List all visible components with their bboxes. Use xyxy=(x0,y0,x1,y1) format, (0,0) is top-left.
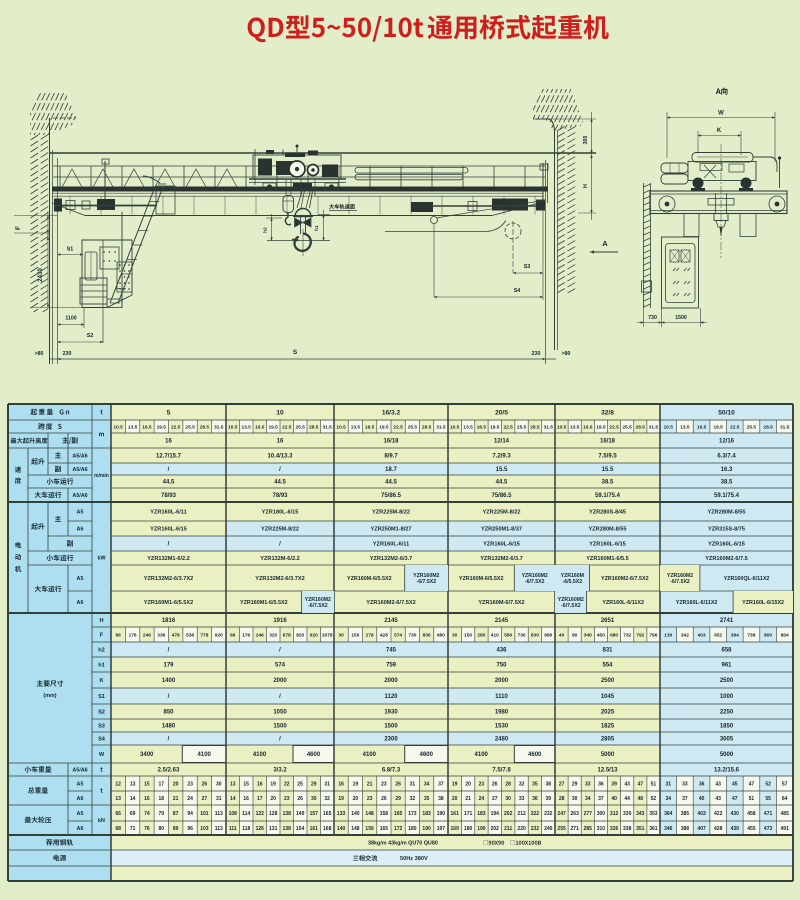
svg-text:4100: 4100 xyxy=(475,752,489,758)
svg-text:A: A xyxy=(602,239,608,248)
svg-text:830: 830 xyxy=(423,633,431,639)
svg-text:31: 31 xyxy=(216,796,222,802)
svg-text:2025: 2025 xyxy=(601,710,615,716)
svg-text:16: 16 xyxy=(243,796,249,802)
svg-text:10.4/13.3: 10.4/13.3 xyxy=(267,454,293,460)
svg-text:271: 271 xyxy=(571,826,580,832)
svg-text:34: 34 xyxy=(424,782,430,788)
svg-text:19: 19 xyxy=(452,782,458,788)
svg-text:652: 652 xyxy=(714,633,722,639)
svg-text:47: 47 xyxy=(638,782,644,788)
svg-text:22: 22 xyxy=(284,782,290,788)
svg-text:15: 15 xyxy=(243,782,249,788)
svg-text:44.5: 44.5 xyxy=(385,480,397,486)
svg-text:6.8/7.3: 6.8/7.3 xyxy=(382,768,401,774)
svg-text:436: 436 xyxy=(496,648,507,654)
svg-text:YZR180L-6/15: YZR180L-6/15 xyxy=(262,510,299,516)
svg-text:246: 246 xyxy=(143,633,151,639)
svg-text:39: 39 xyxy=(546,796,552,802)
svg-text:A5/A6: A5/A6 xyxy=(72,768,87,774)
svg-text:20: 20 xyxy=(353,796,359,802)
svg-text:YZR250M1-8/37: YZR250M1-8/37 xyxy=(481,527,522,533)
svg-text:28.5: 28.5 xyxy=(200,425,210,431)
svg-text:16.5: 16.5 xyxy=(697,425,707,431)
svg-text:197: 197 xyxy=(437,826,446,832)
svg-text:16.5: 16.5 xyxy=(477,425,487,431)
svg-text:S1: S1 xyxy=(98,694,105,700)
svg-text:2145: 2145 xyxy=(384,618,398,624)
svg-text:40: 40 xyxy=(559,633,565,639)
svg-text:43: 43 xyxy=(624,782,630,788)
svg-text:455: 455 xyxy=(747,826,756,832)
svg-text:14: 14 xyxy=(230,796,236,802)
svg-text:S3: S3 xyxy=(524,264,531,270)
svg-text:40: 40 xyxy=(699,796,705,802)
svg-text:15.5: 15.5 xyxy=(602,467,614,473)
svg-text:1120: 1120 xyxy=(384,694,398,700)
svg-text:2300: 2300 xyxy=(384,737,398,743)
svg-text:19: 19 xyxy=(338,796,344,802)
svg-text:YZR160L-6/11: YZR160L-6/11 xyxy=(373,542,409,548)
svg-text:-6/7.5X2: -6/7.5X2 xyxy=(525,579,545,585)
svg-text:YZR160M-6/5.5X2: YZR160M-6/5.5X2 xyxy=(347,576,392,582)
svg-text:31.5: 31.5 xyxy=(544,425,554,431)
svg-text:YZR160M: YZR160M xyxy=(561,573,584,579)
svg-text:19.5: 19.5 xyxy=(269,425,279,431)
svg-text:YZR132M2-6/3.7: YZR132M2-6/3.7 xyxy=(480,556,523,562)
svg-text:S2: S2 xyxy=(87,333,94,339)
svg-text:10.5: 10.5 xyxy=(450,425,460,431)
svg-text:961: 961 xyxy=(721,663,732,669)
svg-text:15.5: 15.5 xyxy=(496,467,508,473)
svg-text:A5: A5 xyxy=(77,510,84,516)
svg-text:1930: 1930 xyxy=(384,710,398,716)
svg-text:37: 37 xyxy=(598,796,604,802)
svg-text:4600: 4600 xyxy=(307,752,321,758)
svg-text:554: 554 xyxy=(602,663,613,669)
svg-text:31: 31 xyxy=(324,782,330,788)
svg-text:H: H xyxy=(99,618,103,624)
svg-text:55: 55 xyxy=(765,796,771,802)
svg-text:S3: S3 xyxy=(98,724,105,730)
svg-text:128: 128 xyxy=(269,811,278,817)
svg-text:-6/7.5X2: -6/7.5X2 xyxy=(308,603,328,609)
svg-text:580: 580 xyxy=(504,633,512,639)
svg-text:1050: 1050 xyxy=(273,710,287,716)
svg-text:m/min: m/min xyxy=(94,473,109,479)
svg-text:A5/A6: A5/A6 xyxy=(72,467,87,473)
svg-text:165: 165 xyxy=(394,811,403,817)
svg-text:920: 920 xyxy=(310,633,318,639)
svg-text:38.5: 38.5 xyxy=(721,480,733,486)
svg-text:22.5: 22.5 xyxy=(171,425,181,431)
svg-text:326: 326 xyxy=(610,826,619,832)
svg-text:50Hz 380V: 50Hz 380V xyxy=(400,856,428,862)
svg-text:5: 5 xyxy=(167,409,171,416)
svg-text:24: 24 xyxy=(479,796,485,802)
svg-text:361: 361 xyxy=(649,826,658,832)
svg-text:458: 458 xyxy=(747,811,756,817)
svg-text:YZR160M2: YZR160M2 xyxy=(667,573,693,579)
svg-text:40: 40 xyxy=(611,796,617,802)
svg-text:2250: 2250 xyxy=(720,710,734,716)
svg-text:980: 980 xyxy=(437,633,445,639)
svg-text:32: 32 xyxy=(324,796,330,802)
svg-text:428: 428 xyxy=(714,826,723,832)
svg-text:450: 450 xyxy=(597,633,605,639)
svg-text:F: F xyxy=(100,633,104,639)
svg-text:h2: h2 xyxy=(263,227,269,233)
svg-text:16: 16 xyxy=(165,439,172,445)
svg-text:16: 16 xyxy=(144,796,150,802)
svg-text:h1: h1 xyxy=(98,663,105,669)
svg-text:YZR160M1-6/5.5X2: YZR160M1-6/5.5X2 xyxy=(240,600,288,606)
svg-text:2000: 2000 xyxy=(273,678,287,684)
svg-text:52: 52 xyxy=(765,782,771,788)
svg-text:173: 173 xyxy=(408,811,417,817)
svg-text:388: 388 xyxy=(681,826,690,832)
svg-text:5000: 5000 xyxy=(720,752,734,758)
svg-text:YZR160M2-6/7.5X2: YZR160M2-6/7.5X2 xyxy=(601,576,649,582)
svg-text:29: 29 xyxy=(395,796,401,802)
svg-text:407: 407 xyxy=(697,826,706,832)
svg-text:22.5: 22.5 xyxy=(504,425,514,431)
svg-text:90: 90 xyxy=(572,633,578,639)
svg-text:168: 168 xyxy=(323,826,332,832)
svg-text:2000: 2000 xyxy=(384,678,398,684)
svg-text:YZR280M-8/55: YZR280M-8/55 xyxy=(708,510,746,516)
svg-text:19.5: 19.5 xyxy=(157,425,167,431)
svg-text:A6: A6 xyxy=(77,600,84,606)
svg-text:1500: 1500 xyxy=(384,724,398,730)
svg-text:YZR160M-6/5.5X2: YZR160M-6/5.5X2 xyxy=(459,576,504,582)
svg-text:17: 17 xyxy=(257,796,263,802)
svg-text:222: 222 xyxy=(531,811,540,817)
svg-text:320: 320 xyxy=(269,633,277,639)
svg-text:YZR225M-8/22: YZR225M-8/22 xyxy=(483,510,521,516)
svg-text:430: 430 xyxy=(731,811,740,817)
svg-text:172: 172 xyxy=(394,826,403,832)
svg-text:YZR160M2: YZR160M2 xyxy=(558,597,584,603)
svg-text:23: 23 xyxy=(284,796,290,802)
svg-text:16.5: 16.5 xyxy=(255,425,265,431)
svg-text:43: 43 xyxy=(715,796,721,802)
svg-text:1850: 1850 xyxy=(720,724,734,730)
svg-text:140: 140 xyxy=(351,811,360,817)
svg-text:10.5: 10.5 xyxy=(336,425,346,431)
svg-text:10.5: 10.5 xyxy=(557,425,567,431)
svg-text:28.5: 28.5 xyxy=(309,425,319,431)
svg-text:28.5: 28.5 xyxy=(763,425,773,431)
svg-text:2651: 2651 xyxy=(601,618,615,624)
svg-text:157: 157 xyxy=(310,811,319,817)
svg-text:1045: 1045 xyxy=(601,694,615,700)
svg-text:21: 21 xyxy=(465,796,471,802)
svg-text:76: 76 xyxy=(144,826,150,832)
svg-text:31.5: 31.5 xyxy=(214,425,224,431)
svg-text:30: 30 xyxy=(311,796,317,802)
svg-text:158: 158 xyxy=(380,811,389,817)
svg-text:13.5: 13.5 xyxy=(570,425,580,431)
svg-text:2805: 2805 xyxy=(601,737,615,743)
svg-text:183: 183 xyxy=(422,811,431,817)
svg-text:16.3: 16.3 xyxy=(721,467,733,473)
svg-text:S: S xyxy=(293,349,298,356)
svg-text:26: 26 xyxy=(202,782,208,788)
svg-text:1500: 1500 xyxy=(675,315,687,321)
svg-text:19: 19 xyxy=(353,782,359,788)
svg-text:150: 150 xyxy=(464,633,472,639)
svg-text:759: 759 xyxy=(386,663,397,669)
svg-text:26: 26 xyxy=(395,782,401,788)
svg-text:428: 428 xyxy=(380,633,388,639)
svg-text:338: 338 xyxy=(623,826,632,832)
svg-text:15: 15 xyxy=(144,782,150,788)
svg-text:300: 300 xyxy=(583,136,589,145)
svg-text:804: 804 xyxy=(781,633,789,639)
svg-text:A6: A6 xyxy=(77,826,84,832)
svg-text:25.5: 25.5 xyxy=(296,425,306,431)
svg-text:118: 118 xyxy=(242,826,250,832)
svg-text:38: 38 xyxy=(546,782,552,788)
svg-text:491: 491 xyxy=(781,826,790,832)
svg-text:1530: 1530 xyxy=(495,724,509,730)
svg-text:19: 19 xyxy=(270,782,276,788)
svg-text:230: 230 xyxy=(532,351,541,357)
svg-text:745: 745 xyxy=(386,648,397,654)
svg-text:21: 21 xyxy=(367,782,373,788)
svg-text:211: 211 xyxy=(504,826,512,832)
svg-text:28: 28 xyxy=(505,782,511,788)
svg-text:340: 340 xyxy=(584,633,592,639)
svg-text:830: 830 xyxy=(531,633,539,639)
svg-text:F: F xyxy=(15,226,22,230)
svg-text:3/3.2: 3/3.2 xyxy=(273,768,287,774)
svg-text:255: 255 xyxy=(557,826,566,832)
svg-text:165: 165 xyxy=(380,826,389,832)
svg-text:27: 27 xyxy=(492,796,498,802)
svg-text:161: 161 xyxy=(310,826,319,832)
svg-text:A6: A6 xyxy=(77,527,84,533)
svg-text:44.5: 44.5 xyxy=(163,480,175,486)
svg-text:2000: 2000 xyxy=(495,678,509,684)
svg-text:122: 122 xyxy=(256,811,265,817)
svg-text:4600: 4600 xyxy=(420,752,434,758)
svg-text:YZR160L-6/15: YZR160L-6/15 xyxy=(150,527,187,533)
svg-text:66: 66 xyxy=(115,811,121,817)
svg-text:1480: 1480 xyxy=(162,724,176,730)
svg-text:87: 87 xyxy=(173,811,179,817)
svg-text:10.5: 10.5 xyxy=(114,425,124,431)
svg-text:130: 130 xyxy=(664,633,672,639)
svg-text:31.5: 31.5 xyxy=(323,425,333,431)
svg-text:33: 33 xyxy=(519,796,525,802)
svg-text:154: 154 xyxy=(296,826,305,832)
svg-text:113: 113 xyxy=(215,811,223,817)
svg-text:161: 161 xyxy=(451,811,460,817)
svg-text:156: 156 xyxy=(365,826,374,832)
svg-text:26: 26 xyxy=(297,796,303,802)
svg-text:32/8: 32/8 xyxy=(601,409,614,416)
svg-text:31: 31 xyxy=(666,782,672,788)
svg-text:439: 439 xyxy=(731,826,740,832)
svg-text:280: 280 xyxy=(477,633,485,639)
svg-text:36: 36 xyxy=(699,782,705,788)
svg-text:346: 346 xyxy=(664,826,673,832)
svg-text:850: 850 xyxy=(163,710,174,716)
svg-text:658: 658 xyxy=(721,648,732,654)
svg-text:28.5: 28.5 xyxy=(636,425,646,431)
svg-text:19.5: 19.5 xyxy=(714,425,724,431)
svg-text:165: 165 xyxy=(323,811,332,817)
svg-text:247: 247 xyxy=(557,811,566,817)
svg-text:38: 38 xyxy=(438,796,444,802)
svg-text:285: 285 xyxy=(584,826,593,832)
svg-text:150: 150 xyxy=(351,633,359,639)
svg-text:YZR250M1-8/27: YZR250M1-8/27 xyxy=(370,527,411,533)
svg-text:2480: 2480 xyxy=(495,737,509,743)
svg-text:13: 13 xyxy=(130,782,136,788)
svg-text:28.5: 28.5 xyxy=(422,425,432,431)
svg-text:278: 278 xyxy=(366,633,374,639)
svg-text:750: 750 xyxy=(496,663,507,669)
svg-text:7.2/9.3: 7.2/9.3 xyxy=(492,454,511,460)
svg-text:10: 10 xyxy=(276,409,284,416)
svg-text:30: 30 xyxy=(505,796,511,802)
svg-text:8/9.7: 8/9.7 xyxy=(384,454,398,460)
svg-text:94: 94 xyxy=(187,811,193,817)
svg-text:16: 16 xyxy=(257,782,263,788)
svg-text:240: 240 xyxy=(544,826,553,832)
svg-text:S4: S4 xyxy=(514,288,521,294)
svg-text:29: 29 xyxy=(572,782,578,788)
svg-text:kW: kW xyxy=(97,556,106,562)
svg-text:YZR132M2-6/3.7X2: YZR132M2-6/3.7X2 xyxy=(255,576,304,582)
svg-text:33: 33 xyxy=(682,782,688,788)
svg-text:114: 114 xyxy=(242,811,250,817)
svg-text:10.5: 10.5 xyxy=(664,425,674,431)
svg-text:792: 792 xyxy=(636,633,644,639)
svg-text:1100: 1100 xyxy=(65,316,76,322)
svg-text:4100: 4100 xyxy=(253,752,267,758)
svg-text:K: K xyxy=(99,678,103,684)
svg-text:16: 16 xyxy=(277,439,284,445)
svg-text:1816: 1816 xyxy=(162,618,176,624)
svg-text:YZR160L-6/15X2: YZR160L-6/15X2 xyxy=(742,600,784,606)
svg-text:24: 24 xyxy=(187,796,193,802)
svg-text:45: 45 xyxy=(732,782,738,788)
svg-text:13.5: 13.5 xyxy=(242,425,252,431)
svg-text:5000: 5000 xyxy=(601,752,615,758)
svg-text:16: 16 xyxy=(338,782,344,788)
svg-text:YZR160QL-6/11X2: YZR160QL-6/11X2 xyxy=(724,576,770,582)
svg-text:3400: 3400 xyxy=(140,752,154,758)
svg-text:13.5: 13.5 xyxy=(128,425,138,431)
svg-text:2500: 2500 xyxy=(601,678,615,684)
svg-text:YZR132M-6/2.2: YZR132M-6/2.2 xyxy=(260,556,299,562)
svg-text:26: 26 xyxy=(381,796,387,802)
svg-text:44.5: 44.5 xyxy=(496,480,508,486)
svg-text:680: 680 xyxy=(610,633,618,639)
svg-text:29: 29 xyxy=(311,782,317,788)
svg-text:48: 48 xyxy=(638,796,644,802)
svg-text:4100: 4100 xyxy=(198,752,212,758)
svg-text:35: 35 xyxy=(424,796,430,802)
svg-text:47: 47 xyxy=(732,796,738,802)
svg-text:190: 190 xyxy=(437,811,446,817)
svg-text:YZR160L-6/11X2: YZR160L-6/11X2 xyxy=(676,600,718,606)
svg-text:14: 14 xyxy=(130,796,136,802)
svg-text:69: 69 xyxy=(130,811,136,817)
svg-text:277: 277 xyxy=(584,811,593,817)
svg-text:169: 169 xyxy=(451,826,460,832)
svg-text:1980: 1980 xyxy=(495,710,509,716)
svg-text:820: 820 xyxy=(296,633,304,639)
svg-text:44.5: 44.5 xyxy=(274,480,286,486)
svg-text:1916: 1916 xyxy=(273,618,287,624)
svg-text:66: 66 xyxy=(116,633,122,639)
svg-text:394: 394 xyxy=(731,633,739,639)
svg-text:23: 23 xyxy=(187,782,193,788)
svg-text:30: 30 xyxy=(452,633,458,639)
svg-text:YZR160L-6/11X2: YZR160L-6/11X2 xyxy=(602,600,644,606)
svg-text:YZR280M-8/55: YZR280M-8/55 xyxy=(589,527,627,533)
svg-text:108: 108 xyxy=(229,811,238,817)
svg-text:310: 310 xyxy=(597,826,606,832)
svg-text:31.5: 31.5 xyxy=(436,425,446,431)
svg-text:13: 13 xyxy=(230,782,236,788)
svg-text:YZR132M2-6/3.7: YZR132M2-6/3.7 xyxy=(370,556,413,562)
svg-text:2145: 2145 xyxy=(495,618,509,624)
svg-text:312: 312 xyxy=(610,811,619,817)
svg-text:17: 17 xyxy=(159,782,165,788)
svg-text:>80: >80 xyxy=(562,351,571,357)
svg-text:16.5: 16.5 xyxy=(583,425,593,431)
svg-text:730: 730 xyxy=(518,633,526,639)
svg-text:13.5: 13.5 xyxy=(351,425,361,431)
svg-text:28.5: 28.5 xyxy=(530,425,540,431)
svg-text:16.5: 16.5 xyxy=(142,425,152,431)
svg-text:YZR160M1-6/5.5: YZR160M1-6/5.5 xyxy=(586,556,629,562)
svg-text:(mm): (mm) xyxy=(43,693,56,699)
svg-text:190: 190 xyxy=(422,826,431,832)
svg-text:YZR160M2: YZR160M2 xyxy=(522,573,548,579)
svg-text:16/18: 16/18 xyxy=(600,439,616,445)
svg-text:478: 478 xyxy=(172,633,180,639)
svg-text:A5: A5 xyxy=(77,811,84,817)
svg-text:31: 31 xyxy=(410,782,416,788)
svg-text:23: 23 xyxy=(381,782,387,788)
svg-text:13.2/15.6: 13.2/15.6 xyxy=(714,768,740,774)
svg-text:364: 364 xyxy=(664,811,673,817)
svg-text:27: 27 xyxy=(202,796,208,802)
svg-text:20: 20 xyxy=(173,782,179,788)
svg-text:YZR132M1-6/2.2: YZR132M1-6/2.2 xyxy=(147,556,190,562)
svg-text:980: 980 xyxy=(544,633,552,639)
svg-text:149: 149 xyxy=(296,811,305,817)
svg-text:-6/7.5X2: -6/7.5X2 xyxy=(670,579,690,585)
svg-text:574: 574 xyxy=(394,633,402,639)
svg-text:385: 385 xyxy=(681,811,690,817)
svg-text:1825: 1825 xyxy=(601,724,615,730)
svg-text:YZR225M-8/22: YZR225M-8/22 xyxy=(261,527,299,533)
svg-text:W: W xyxy=(718,111,724,117)
svg-text:80: 80 xyxy=(159,826,165,832)
svg-text:202: 202 xyxy=(504,811,513,817)
svg-text:403: 403 xyxy=(697,811,706,817)
svg-text:51: 51 xyxy=(651,782,657,788)
svg-text:2.5/2.63: 2.5/2.63 xyxy=(158,768,180,774)
